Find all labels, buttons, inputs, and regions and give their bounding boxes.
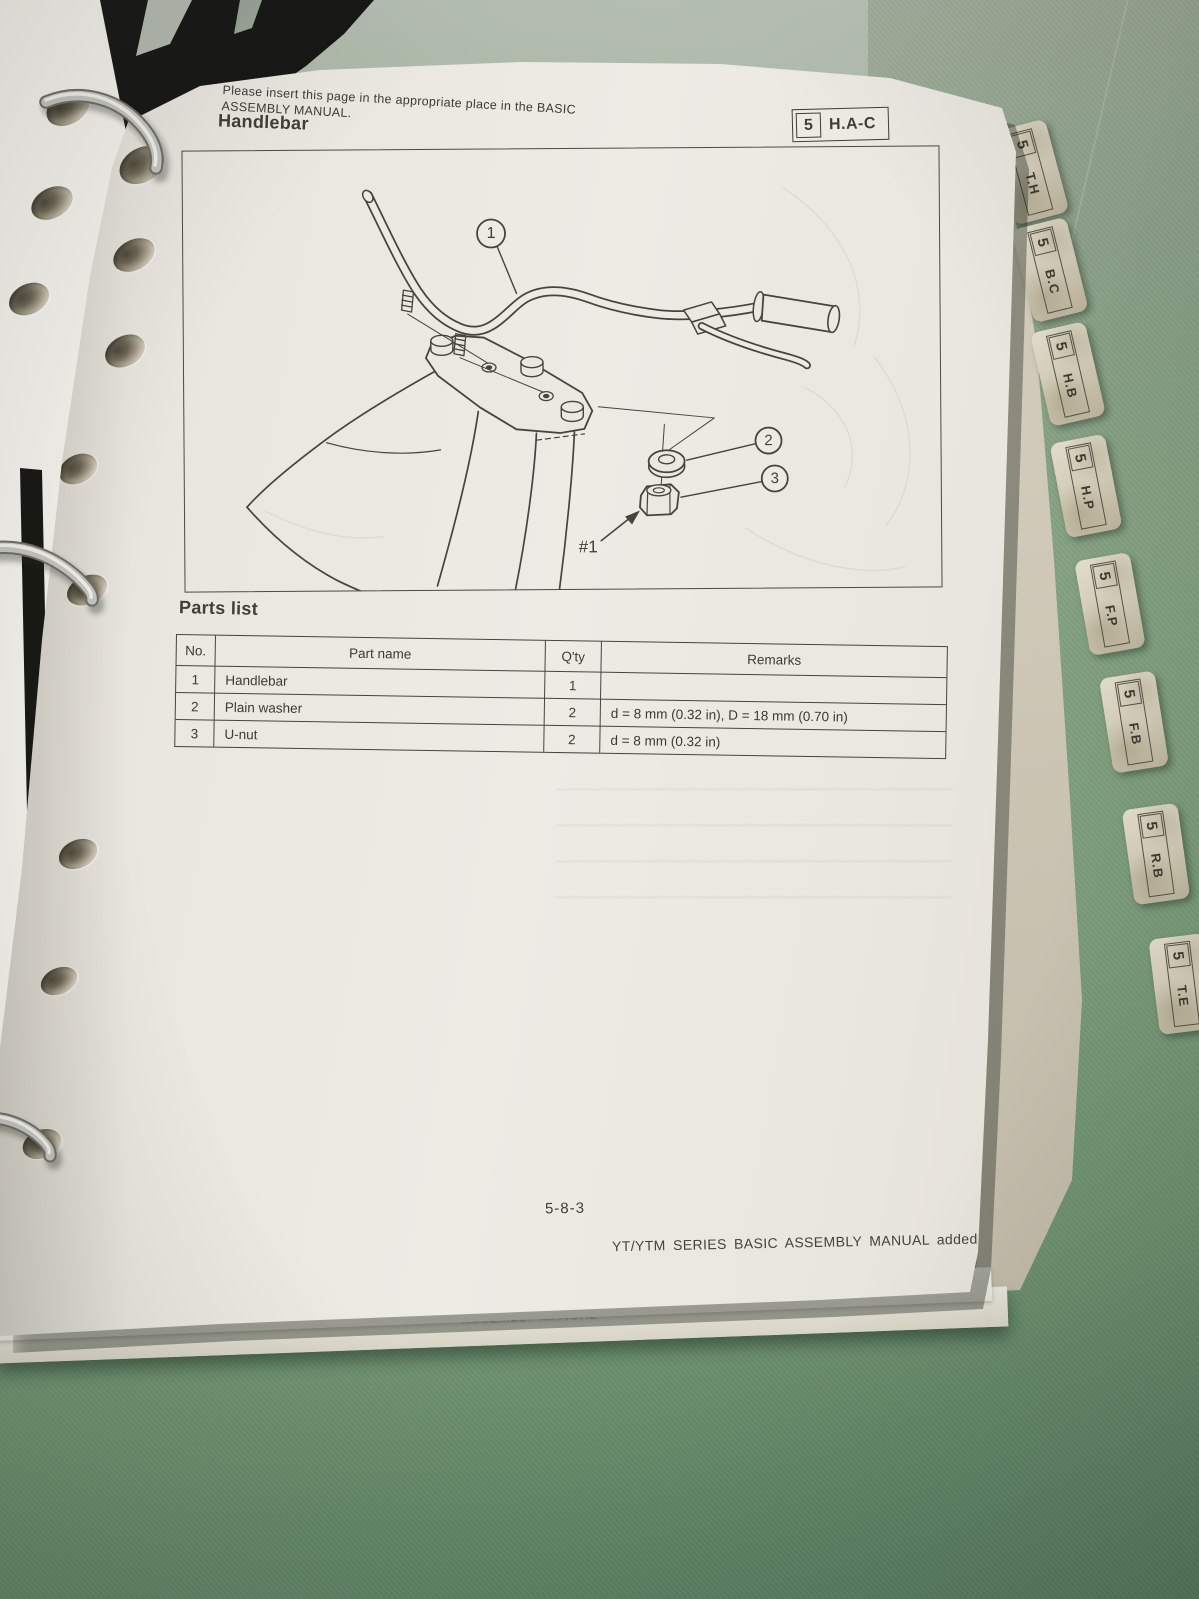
punch-hole [62,569,112,612]
tab-label: F.P [1100,586,1125,646]
punch-hole [36,961,81,1000]
punch-hole [18,1124,66,1165]
tab-frame: 5 H.B [1046,330,1090,418]
tab-frame: 5 T.E [1164,941,1199,1028]
page-title: Handlebar [218,110,309,134]
cell-no: 1 [176,665,214,693]
cell-no: 3 [175,719,213,747]
callout-1: 1 [487,225,496,242]
tab-frame: 5 R.B [1137,811,1174,898]
tab-frame: 5 B.C [1027,226,1073,314]
cell-qty: 1 [544,671,600,699]
diagram-frame: 1 2 3 #1 [181,145,942,592]
tab-label: B.C [1039,252,1068,312]
ref-label: #1 [579,537,598,556]
cell-qty: 2 [543,725,599,753]
badge-number: 5 [796,113,822,139]
handlebar-diagram: 1 2 3 #1 [182,146,941,591]
tab-frame: 5 H.P [1065,442,1107,529]
footer-imprint: YT/YTM SERIES BASIC ASSEMBLY MANUAL adde… [612,1230,1018,1255]
tab-label: R.B [1146,836,1169,896]
badge-code: H.A-C [821,114,885,134]
col-header-qty: Q'ty [544,641,600,672]
parts-table: No. Part name Q'ty Remarks 1 Handlebar 1… [174,634,948,759]
callout-2: 2 [764,432,772,449]
punch-hole [54,833,102,875]
cell-part-name: U-nut [213,720,543,752]
parts-list-title: Parts list [179,597,258,620]
callout-3: 3 [771,470,779,487]
tab-number: 5 [1166,943,1191,969]
punch-hole [108,231,161,278]
cell-qty: 2 [544,698,600,726]
punch-hole [99,328,150,374]
tab-label: H.P [1075,468,1101,528]
tab-frame: 5 F.B [1115,678,1154,765]
section-badge: 5 H.A-C [792,107,890,143]
photo-canvas: 5 T.H 5 B.C 5 H.B 5 H.P 5 F.P 5 F.B [0,0,1199,1599]
tab-label: F.B [1124,704,1148,764]
cell-no: 2 [176,692,214,720]
tab-frame: 5 F.P [1090,560,1130,647]
tab-number: 5 [1140,813,1165,839]
show-through-table [555,753,954,910]
tab-label: T.E [1172,966,1194,1025]
punch-hole [113,138,172,191]
tab-label: H.B [1057,356,1085,416]
page-number: 5-8-3 [545,1200,585,1218]
col-header-no: No. [177,635,215,666]
